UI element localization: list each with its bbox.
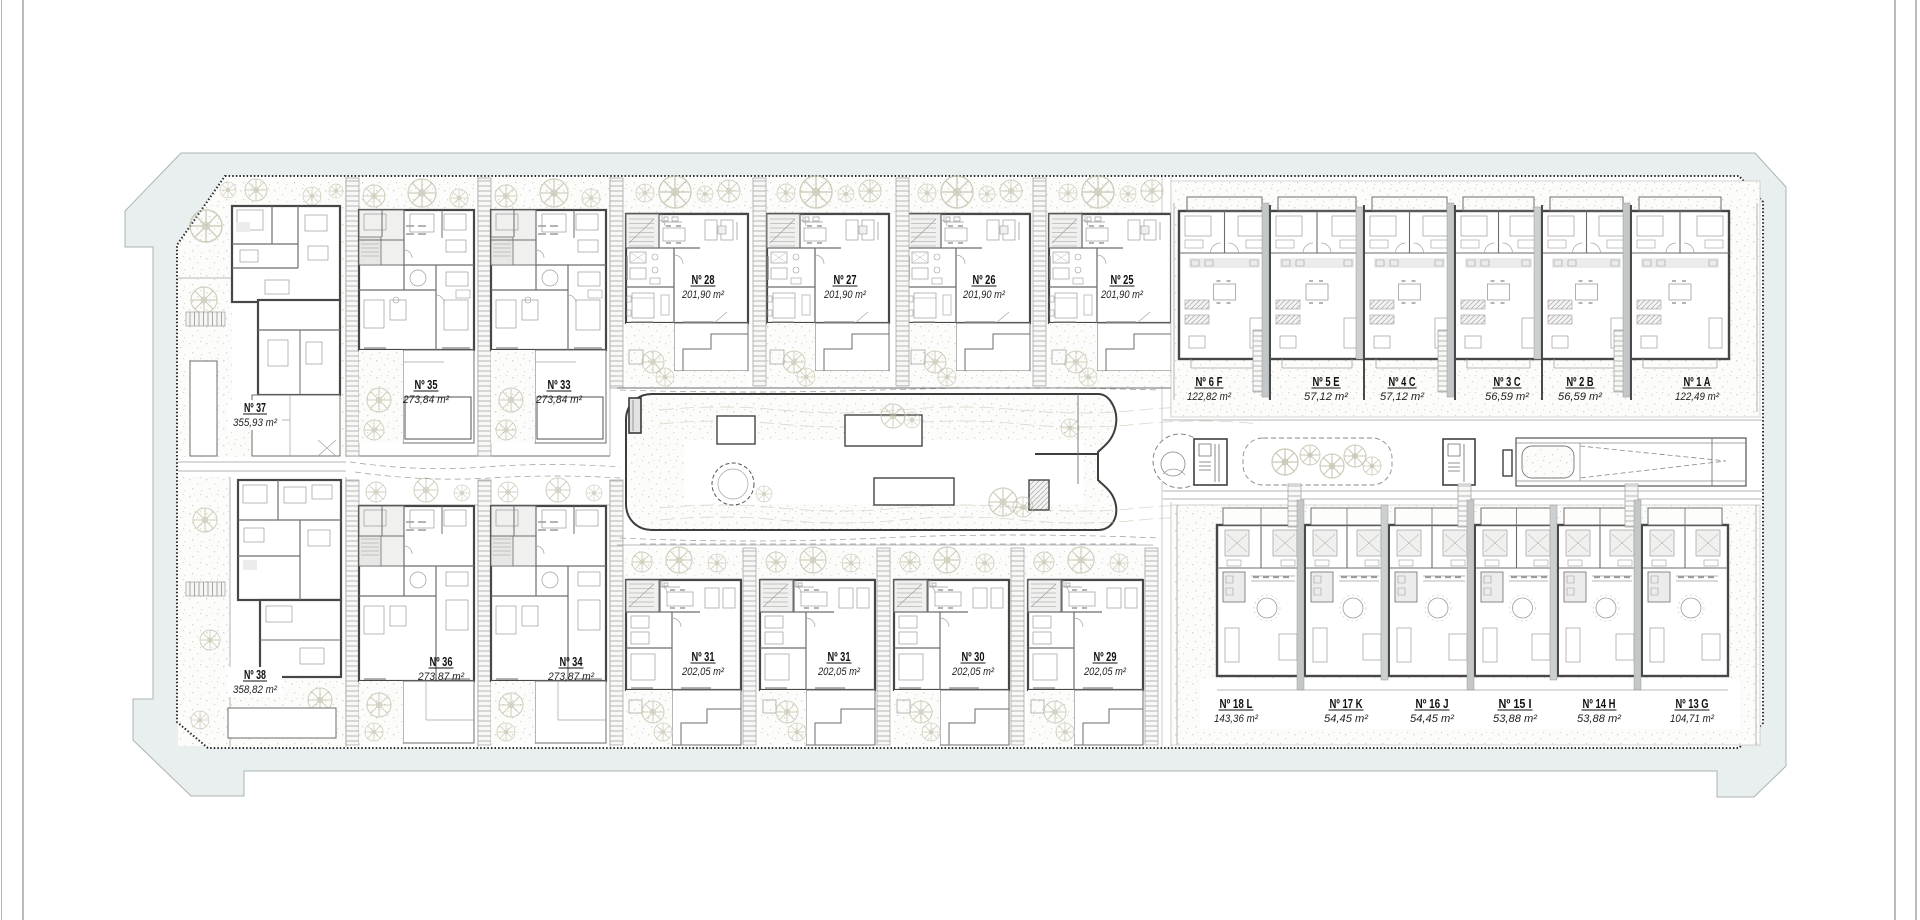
svg-text:122,82 m²: 122,82 m² xyxy=(1187,391,1231,403)
svg-text:Nº 18 L: Nº 18 L xyxy=(1220,697,1253,711)
svg-text:Nº 25: Nº 25 xyxy=(1111,273,1134,287)
svg-text:122,49 m²: 122,49 m² xyxy=(1675,391,1719,403)
svg-text:Nº 26: Nº 26 xyxy=(973,273,996,287)
svg-text:201,90 m²: 201,90 m² xyxy=(1100,289,1143,301)
svg-text:Nº 27: Nº 27 xyxy=(834,273,857,287)
svg-text:Nº 28: Nº 28 xyxy=(692,273,715,287)
svg-text:355,93 m²: 355,93 m² xyxy=(233,417,277,429)
svg-text:Nº 4 C: Nº 4 C xyxy=(1389,375,1416,389)
svg-text:Nº 35: Nº 35 xyxy=(415,378,438,392)
svg-text:Nº 33: Nº 33 xyxy=(548,378,571,392)
svg-text:201,90 m²: 201,90 m² xyxy=(681,289,724,301)
svg-text:Nº 37: Nº 37 xyxy=(244,401,266,415)
svg-text:56,59 m²: 56,59 m² xyxy=(1485,391,1529,403)
svg-text:Nº 29: Nº 29 xyxy=(1094,650,1117,664)
svg-text:202,05 m²: 202,05 m² xyxy=(1083,666,1126,678)
svg-text:54,45 m²: 54,45 m² xyxy=(1324,713,1368,725)
svg-text:358,82 m²: 358,82 m² xyxy=(233,684,277,696)
svg-text:Nº 14 H: Nº 14 H xyxy=(1583,697,1616,711)
svg-text:57,12 m²: 57,12 m² xyxy=(1380,391,1424,403)
svg-text:57,12 m²: 57,12 m² xyxy=(1304,391,1348,403)
svg-text:53,88 m²: 53,88 m² xyxy=(1577,713,1621,725)
svg-text:Nº 3 C: Nº 3 C xyxy=(1494,375,1521,389)
svg-text:201,90 m²: 201,90 m² xyxy=(823,289,866,301)
svg-text:202,05 m²: 202,05 m² xyxy=(951,666,994,678)
svg-text:53,88 m²: 53,88 m² xyxy=(1493,713,1537,725)
svg-text:Nº 30: Nº 30 xyxy=(962,650,985,664)
svg-text:Nº 38: Nº 38 xyxy=(244,668,266,682)
svg-text:54,45 m²: 54,45 m² xyxy=(1410,713,1454,725)
svg-text:Nº 15 I: Nº 15 I xyxy=(1499,697,1532,711)
svg-text:Nº 16 J: Nº 16 J xyxy=(1416,697,1449,711)
svg-text:Nº 6 F: Nº 6 F xyxy=(1196,375,1223,389)
svg-text:202,05 m²: 202,05 m² xyxy=(817,666,860,678)
svg-text:Nº 1 A: Nº 1 A xyxy=(1684,375,1711,389)
svg-text:143,36 m²: 143,36 m² xyxy=(1214,713,1258,725)
svg-text:Nº 5 E: Nº 5 E xyxy=(1313,375,1340,389)
svg-text:Nº 31: Nº 31 xyxy=(828,650,851,664)
svg-text:Nº 17 K: Nº 17 K xyxy=(1330,697,1363,711)
svg-text:201,90 m²: 201,90 m² xyxy=(962,289,1005,301)
svg-text:56,59 m²: 56,59 m² xyxy=(1558,391,1602,403)
svg-text:Nº 36: Nº 36 xyxy=(430,655,453,669)
svg-text:104,71 m²: 104,71 m² xyxy=(1670,713,1714,725)
svg-text:Nº 34: Nº 34 xyxy=(560,655,583,669)
svg-text:Nº 13 G: Nº 13 G xyxy=(1676,697,1709,711)
svg-text:Nº 2 B: Nº 2 B xyxy=(1567,375,1594,389)
svg-text:273,87 m²: 273,87 m² xyxy=(417,671,464,683)
svg-text:273,84 m²: 273,84 m² xyxy=(535,394,582,406)
svg-text:Nº 31: Nº 31 xyxy=(692,650,715,664)
svg-text:273,87 m²: 273,87 m² xyxy=(547,671,594,683)
svg-text:273,84 m²: 273,84 m² xyxy=(402,394,449,406)
svg-text:202,05 m²: 202,05 m² xyxy=(681,666,724,678)
